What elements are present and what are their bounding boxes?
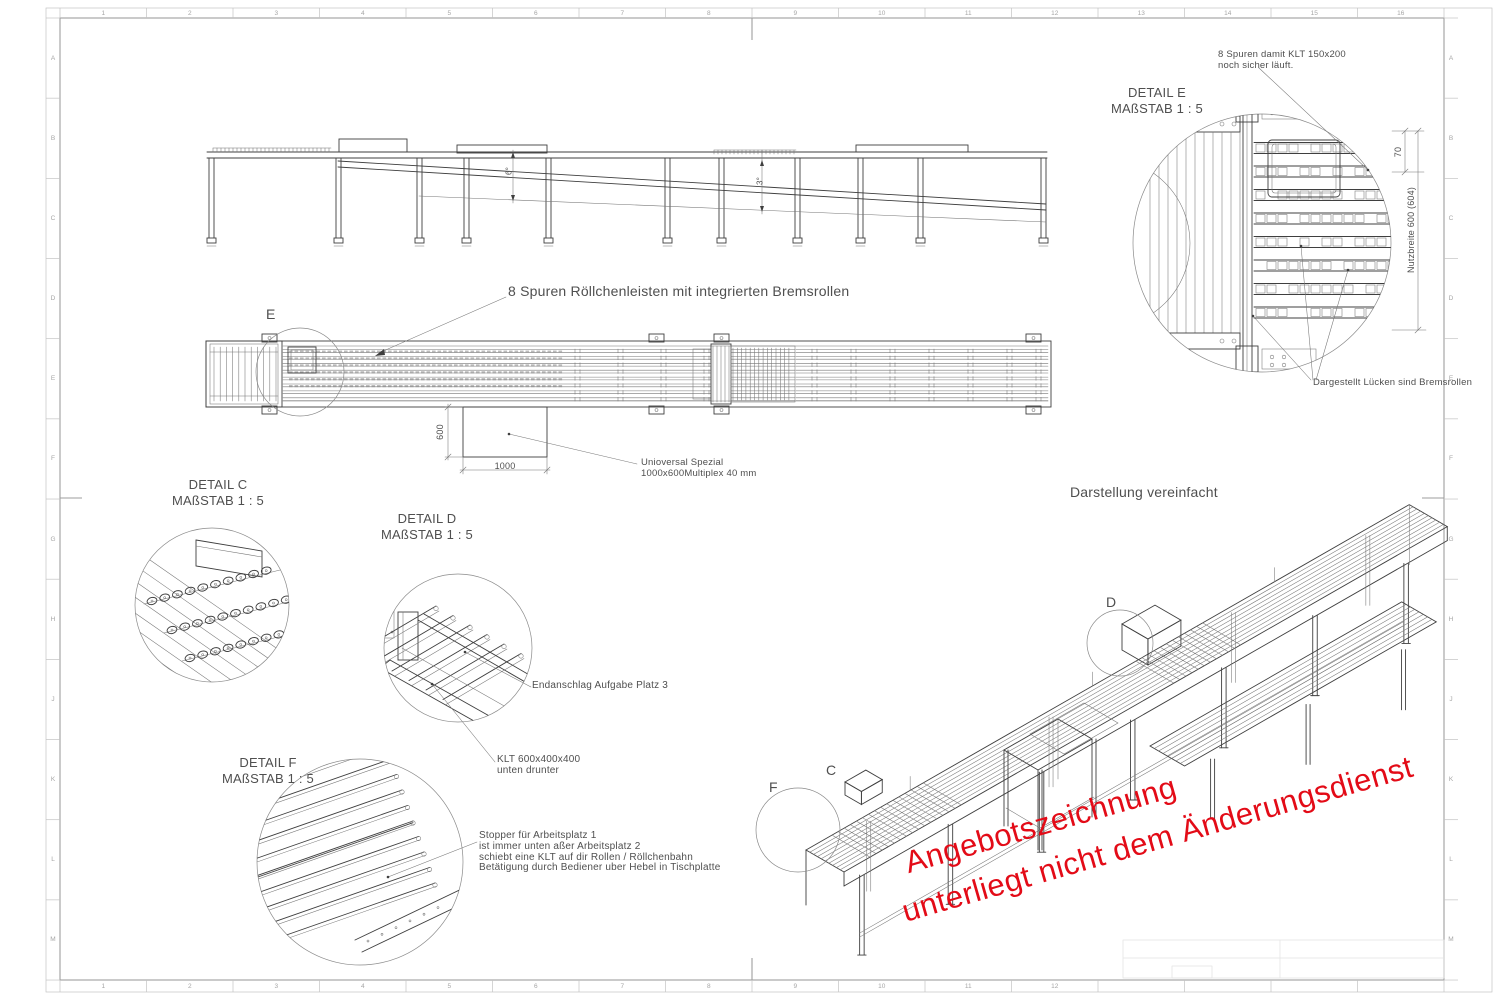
iso-title: Darstellung vereinfacht	[1070, 484, 1218, 500]
grid-ref-label: 10	[839, 8, 926, 18]
detail-f-title: DETAIL F MAßSTAB 1 : 5	[213, 755, 323, 786]
note-klt150-line1: 8 Spuren damit KLT 150x200	[1218, 49, 1346, 60]
detail-e-scale: MAßSTAB 1 : 5	[1102, 101, 1212, 117]
grid-ref-label: 9	[752, 8, 839, 18]
detail-d-name: DETAIL D	[372, 511, 482, 527]
grid-ref-label: 15	[1271, 8, 1358, 18]
grid-ref-label: 7	[579, 980, 666, 992]
note-klt150-line2: noch sicher läuft.	[1218, 60, 1346, 71]
grid-ref-label: A	[1444, 18, 1458, 98]
note-stopper-line2: ist immer unten aßer Arbeitsplatz 2	[479, 842, 720, 853]
grid-ref-label: M	[1444, 900, 1458, 980]
grid-ref-label: 12	[1012, 980, 1099, 992]
grid-ref-label: G	[46, 499, 60, 579]
grid-ref-label: H	[46, 579, 60, 659]
note-endanschlag: Endanschlag Aufgabe Platz 3	[532, 681, 668, 692]
detail-f-name: DETAIL F	[213, 755, 323, 771]
grid-ref-label: B	[46, 98, 60, 178]
grid-ref-label: 14	[1185, 8, 1272, 18]
drawing-sheet: 12345678910111213141516 123456789101112 …	[0, 0, 1500, 1000]
plan-dim-1000: 1000	[485, 461, 525, 471]
grid-ref-label	[1271, 980, 1358, 992]
detail-e-name: DETAIL E	[1102, 85, 1212, 101]
grid-ref-label: 1	[60, 8, 147, 18]
grid-ref-label	[1185, 980, 1272, 992]
grid-ref-label: 9	[752, 980, 839, 992]
grid-ref-label: 4	[320, 8, 407, 18]
grid-ref-label: 6	[493, 980, 580, 992]
grid-ref-label: E	[46, 339, 60, 419]
detail-f-scale: MAßSTAB 1 : 5	[213, 771, 323, 787]
grid-ref-label: 10	[839, 980, 926, 992]
grid-ref-label: D	[46, 259, 60, 339]
grid-ref-label: 2	[147, 980, 234, 992]
grid-ref-label: B	[1444, 98, 1458, 178]
grid-ref-label: 8	[666, 8, 753, 18]
grid-ref-right: ABCDEFGHJKLM	[1444, 18, 1458, 980]
grid-ref-label: L	[1444, 820, 1458, 900]
grid-ref-label	[1358, 980, 1445, 992]
grid-ref-bottom: 123456789101112	[60, 980, 1444, 992]
iso-marker-c: C	[826, 762, 836, 778]
grid-ref-label: F	[46, 419, 60, 499]
plan-dim-600: 600	[435, 424, 445, 440]
grid-ref-label: 1	[60, 980, 147, 992]
note-stopper: Stopper für Arbeitsplatz 1 ist immer unt…	[479, 831, 720, 874]
grid-ref-label: 16	[1358, 8, 1445, 18]
grid-ref-label: H	[1444, 579, 1458, 659]
grid-ref-label: F	[1444, 419, 1458, 499]
grid-ref-label: C	[46, 178, 60, 258]
note-stopper-line4: Betätigung durch Bediener uber Hebel in …	[479, 863, 720, 874]
grid-ref-label: A	[46, 18, 60, 98]
grid-ref-label: 3	[233, 8, 320, 18]
board-note-line1: Unioversal Spezial	[641, 457, 757, 468]
grid-ref-label	[1098, 980, 1185, 992]
elevation-angle-left: 6°	[505, 167, 514, 175]
dim-nutzbreite: Nutzbreite 600 (604)	[1406, 187, 1416, 273]
note-klt-line2: unten drunter	[497, 766, 580, 777]
detail-c-name: DETAIL C	[163, 477, 273, 493]
grid-ref-label: 11	[925, 8, 1012, 18]
grid-ref-label: 5	[406, 8, 493, 18]
grid-ref-label: L	[46, 820, 60, 900]
iso-marker-f: F	[769, 779, 778, 795]
grid-ref-left: ABCDEFGHJKLM	[46, 18, 60, 980]
grid-ref-label: C	[1444, 178, 1458, 258]
grid-ref-label: K	[46, 740, 60, 820]
dim-70: 70	[1393, 147, 1403, 157]
detail-d-title: DETAIL D MAßSTAB 1 : 5	[372, 511, 482, 542]
grid-ref-label: 4	[320, 980, 407, 992]
detail-c-scale: MAßSTAB 1 : 5	[163, 493, 273, 509]
board-note: Unioversal Spezial 1000x600Multiplex 40 …	[641, 457, 757, 479]
detail-c-title: DETAIL C MAßSTAB 1 : 5	[163, 477, 273, 508]
grid-ref-label: 2	[147, 8, 234, 18]
grid-ref-label: D	[1444, 259, 1458, 339]
grid-ref-label: 7	[579, 8, 666, 18]
detail-d-scale: MAßSTAB 1 : 5	[372, 527, 482, 543]
grid-ref-label: J	[46, 659, 60, 739]
elevation-angle-right: 3°	[756, 177, 765, 185]
grid-ref-label: 8	[666, 980, 753, 992]
grid-ref-label: M	[46, 900, 60, 980]
grid-ref-label: 11	[925, 980, 1012, 992]
grid-ref-label: G	[1444, 499, 1458, 579]
grid-ref-label: 3	[233, 980, 320, 992]
board-note-line2: 1000x600Multiplex 40 mm	[641, 468, 757, 479]
grid-ref-label: 6	[493, 8, 580, 18]
detail-e-title: DETAIL E MAßSTAB 1 : 5	[1102, 85, 1212, 116]
plan-note-8-spuren: 8 Spuren Röllchenleisten mit integrierte…	[508, 283, 849, 299]
grid-ref-label: 12	[1012, 8, 1099, 18]
plan-detail-marker-e: E	[266, 306, 276, 322]
grid-ref-top: 12345678910111213141516	[60, 8, 1444, 18]
note-klt-150: 8 Spuren damit KLT 150x200 noch sicher l…	[1218, 49, 1346, 71]
iso-marker-d: D	[1106, 594, 1116, 610]
note-bremsrollen: Dargestellt Lücken sind Bremsrollen	[1313, 377, 1472, 388]
grid-ref-label: 5	[406, 980, 493, 992]
grid-ref-label: 13	[1098, 8, 1185, 18]
note-klt-600: KLT 600x400x400 unten drunter	[497, 755, 580, 777]
